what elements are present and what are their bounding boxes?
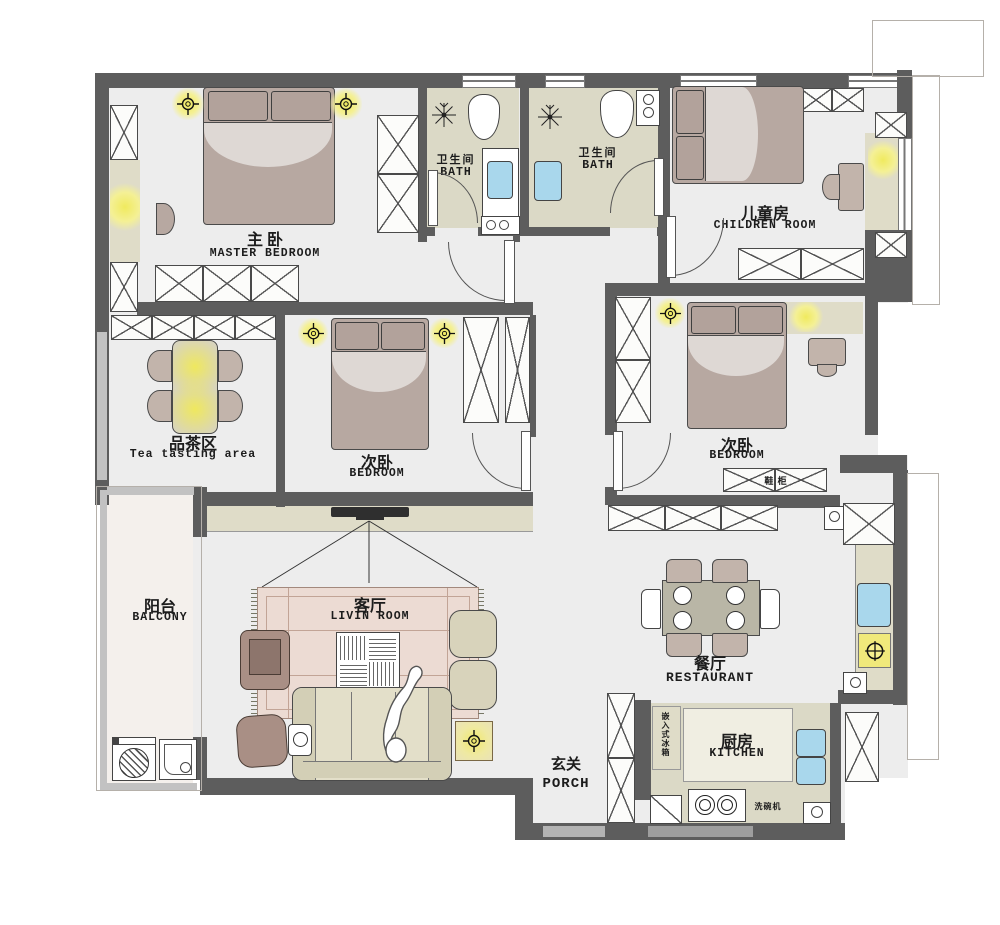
sink xyxy=(534,161,562,201)
room-label-porch-zh: 玄关 xyxy=(551,753,581,774)
children-closet xyxy=(738,248,864,280)
chair xyxy=(147,350,172,382)
window xyxy=(462,75,516,88)
threshold xyxy=(648,826,753,837)
room-label-bedroom2-en: BEDROOM xyxy=(349,467,404,480)
wall-segment xyxy=(865,295,878,435)
wall-segment xyxy=(605,283,877,296)
door-leaf xyxy=(428,170,438,226)
cabinet xyxy=(843,672,867,694)
room-label-bedroom3-en: BEDROOM xyxy=(709,449,764,462)
sink-small xyxy=(803,802,831,824)
wall-segment xyxy=(830,703,841,825)
door-leaf xyxy=(521,431,531,491)
equipment-platform xyxy=(845,712,879,782)
throw-pillow xyxy=(235,713,289,768)
sink xyxy=(487,161,513,199)
chair xyxy=(218,390,243,422)
hall-cabinet xyxy=(608,505,778,531)
desk-glow xyxy=(788,302,824,332)
door-leaf xyxy=(504,240,515,304)
outline xyxy=(907,473,939,760)
table-lamp xyxy=(288,724,312,756)
chair xyxy=(641,589,661,629)
ottoman xyxy=(449,660,497,710)
stove xyxy=(688,789,746,822)
floor-plan: 鞋 柜 主 卧 MASTER BEDROOM 卫生间 BATH 卫生间 xyxy=(0,0,1000,925)
desk-chair xyxy=(817,364,837,377)
room-label-dining-en: RESTAURANT xyxy=(666,670,754,685)
threshold xyxy=(543,826,605,837)
room-label-bath2-en: BATH xyxy=(582,159,614,172)
window-band xyxy=(97,332,107,480)
room-label-children-en: CHILDREN ROOM xyxy=(714,219,817,232)
tea-cabinet xyxy=(111,315,276,340)
chair xyxy=(666,559,702,583)
ceiling-light-icon xyxy=(655,298,685,328)
wall-segment xyxy=(515,795,533,840)
tea-table xyxy=(172,340,218,434)
porch-cabinet xyxy=(607,693,635,823)
chair xyxy=(147,390,172,422)
dishwasher-label: 洗碗机 xyxy=(755,801,782,812)
room-label-tea-en: Tea tasting area xyxy=(130,448,256,461)
closet xyxy=(875,232,907,258)
wardrobe xyxy=(110,262,138,312)
person-figure xyxy=(368,658,432,768)
master-bay-glow xyxy=(110,178,140,236)
master-closet xyxy=(155,265,299,302)
room-label-porch-en: PORCH xyxy=(542,776,589,792)
shoe-cabinet-label: 鞋 柜 xyxy=(764,474,787,487)
wall-segment xyxy=(137,302,533,315)
desk-chair xyxy=(808,338,846,366)
wardrobe xyxy=(110,105,138,160)
closet xyxy=(875,112,907,138)
bed xyxy=(687,302,787,429)
room-label-balcony-en: BALCONY xyxy=(132,611,187,624)
window xyxy=(898,138,912,232)
kitchen-sink xyxy=(796,757,826,785)
chair xyxy=(218,350,243,382)
cabinet xyxy=(843,503,895,545)
ceiling-light-icon xyxy=(298,318,328,348)
sink xyxy=(857,583,891,627)
outside-patch xyxy=(878,303,910,455)
room-label-kitchen-en: KITCHEN xyxy=(709,747,764,760)
shower-head-icon xyxy=(430,101,458,129)
outline xyxy=(912,75,940,305)
desk-chair xyxy=(822,174,840,200)
chair xyxy=(760,589,780,629)
kitchen-sink xyxy=(796,729,826,757)
ceiling-light-icon xyxy=(429,318,459,348)
room-label-living-en: LIVIN ROOM xyxy=(330,610,409,623)
wall-segment xyxy=(193,492,533,506)
ceiling-light-icon xyxy=(172,88,204,120)
tv-projection-lines xyxy=(255,515,485,591)
bed xyxy=(672,86,804,184)
window xyxy=(545,75,585,88)
wall-segment xyxy=(893,470,908,705)
shower-head-icon xyxy=(536,103,564,131)
wall-segment xyxy=(520,88,529,230)
ottoman xyxy=(449,610,497,658)
wall-segment xyxy=(418,88,427,242)
room-label-master-en: MASTER BEDROOM xyxy=(210,247,321,260)
bed xyxy=(203,87,335,225)
bedroom2-wardrobe xyxy=(505,317,530,423)
washbasin-cabinet xyxy=(481,216,520,235)
washing-machine xyxy=(112,737,156,781)
wall-segment xyxy=(423,227,435,236)
outline xyxy=(872,20,984,77)
laundry-sink xyxy=(159,739,197,780)
door-leaf xyxy=(613,431,623,491)
bay-glow xyxy=(868,138,898,182)
dining-table xyxy=(662,580,760,636)
kitchen-door-panel xyxy=(650,795,682,824)
armchair xyxy=(240,630,290,690)
cabinet xyxy=(824,506,844,530)
bedroom3-wardrobe xyxy=(615,297,651,423)
floor-lamp-icon xyxy=(455,721,493,761)
wall-segment xyxy=(276,315,285,507)
wall-segment xyxy=(530,315,536,437)
door-leaf xyxy=(666,216,676,278)
ceiling-light-icon xyxy=(330,88,362,120)
vanity-counter xyxy=(636,90,660,126)
bedroom2-wardrobe xyxy=(463,317,499,423)
bed xyxy=(331,318,429,450)
door-leaf xyxy=(654,158,664,216)
wall-segment xyxy=(633,700,651,800)
children-closet-top xyxy=(800,88,864,112)
desk xyxy=(838,163,864,211)
master-wardrobe xyxy=(377,115,419,233)
burner-icon xyxy=(858,633,891,668)
fridge-label: 嵌入式冰箱 xyxy=(660,712,671,757)
chair xyxy=(712,559,748,583)
